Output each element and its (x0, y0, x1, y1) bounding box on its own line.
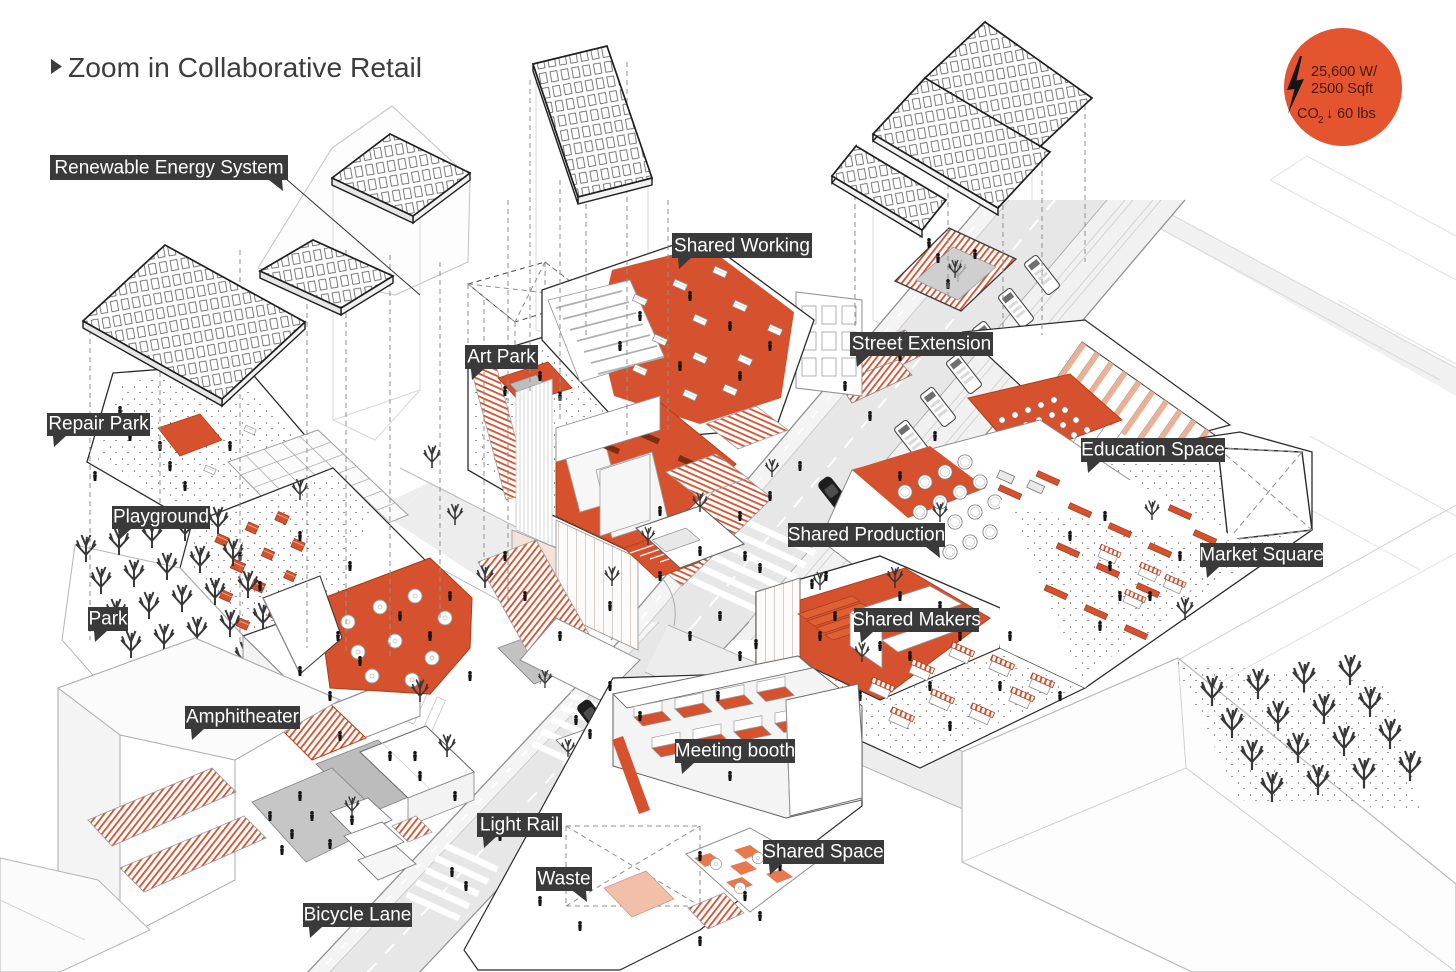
svg-text:60 lbs: 60 lbs (1337, 106, 1376, 122)
svg-text:Amphitheater: Amphitheater (186, 707, 300, 728)
svg-text:CO: CO (1297, 106, 1319, 122)
svg-text:Playground: Playground (113, 507, 209, 528)
svg-text:Renewable Energy System: Renewable Energy System (54, 158, 283, 179)
svg-text:Repair Park: Repair Park (48, 414, 149, 435)
svg-text:Zoom in Collaborative Retail: Zoom in Collaborative Retail (68, 51, 422, 83)
svg-text:Bicycle Lane: Bicycle Lane (304, 905, 412, 926)
svg-text:Light Rail: Light Rail (480, 815, 559, 836)
svg-text:Art Park: Art Park (467, 347, 536, 368)
svg-text:Market Square: Market Square (1199, 545, 1324, 566)
svg-text:Shared Space: Shared Space (763, 842, 883, 863)
svg-text:Shared Makers: Shared Makers (852, 610, 981, 631)
svg-text:Meeting booth: Meeting booth (675, 741, 795, 762)
svg-text:Education Space: Education Space (1081, 440, 1225, 461)
svg-text:2500 Sqft: 2500 Sqft (1311, 81, 1373, 97)
svg-text:2: 2 (1318, 115, 1324, 126)
svg-text:Street Extension: Street Extension (852, 334, 991, 355)
svg-text:25,600 W/: 25,600 W/ (1311, 64, 1378, 80)
svg-text:Park: Park (88, 609, 128, 630)
svg-text:Shared Production: Shared Production (788, 525, 945, 546)
svg-text:Shared Working: Shared Working (674, 236, 810, 257)
svg-text:↓: ↓ (1326, 106, 1333, 122)
svg-text:Waste: Waste (537, 869, 590, 890)
